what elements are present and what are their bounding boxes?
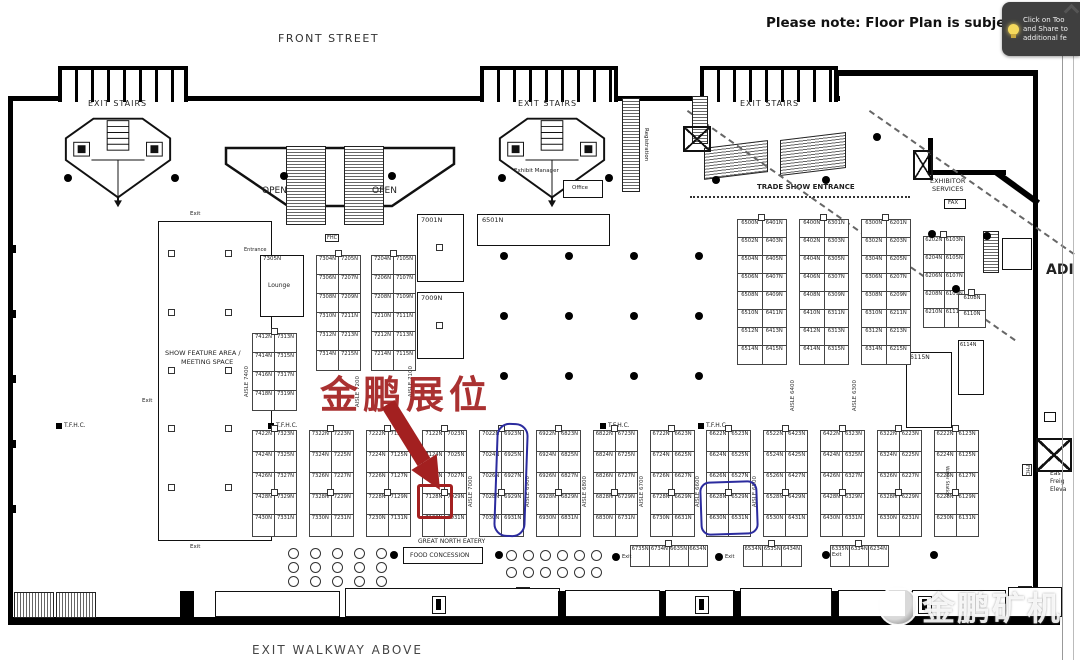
- entrance-label: Entrance: [244, 247, 266, 253]
- booth-row: 6828N6729N: [594, 494, 637, 515]
- booth-cell: 6406N: [800, 274, 825, 291]
- booth-cell: 6504N: [738, 256, 763, 273]
- booth-column-lower: 6822N6723N6824N6725N6826N6727N6828N6729N…: [593, 430, 638, 537]
- booth-cell: 6506N: [738, 274, 763, 291]
- booth-cell: 6622N: [707, 431, 729, 451]
- building-column: [565, 372, 573, 380]
- booth-row: 6412N6313N: [800, 328, 848, 346]
- column-marker: [940, 231, 947, 238]
- tooltip-line: Click on Too: [1023, 16, 1068, 25]
- booth-row: 7306N7207N: [317, 275, 360, 294]
- wall-pilaster: [8, 375, 16, 383]
- booth-cell: 6434N: [782, 546, 800, 566]
- column-marker: [611, 425, 618, 432]
- wall: [660, 591, 666, 617]
- exit-stairs-label: EXIT STAIRS: [740, 99, 799, 108]
- building-column: [695, 372, 703, 380]
- booth-cell: 7125N: [389, 452, 410, 472]
- booth-cell: 6429N: [786, 494, 807, 514]
- column-marker: [820, 214, 827, 221]
- booth-cell: 7416N: [253, 372, 275, 390]
- column-marker: [327, 425, 334, 432]
- booth-cell: 7428N: [253, 494, 275, 514]
- dining-table: [288, 576, 299, 587]
- booth-cell: 6412N: [800, 328, 825, 345]
- exit-label: Exit: [190, 211, 200, 217]
- booth-row: 6930N6831N: [537, 515, 580, 536]
- booth-row: 6108N: [959, 295, 985, 311]
- booth-cell: 6323N: [843, 431, 864, 451]
- exit-stair-vestibule: [700, 66, 838, 102]
- booth-row: 6514N6415N: [738, 346, 786, 364]
- service-room: [1008, 587, 1062, 617]
- booth-cell: 6411N: [763, 310, 787, 327]
- booth-cell: 6315N: [825, 346, 849, 364]
- booth-cell: 6108N: [959, 295, 985, 310]
- booth-cell: 6627N: [673, 473, 694, 493]
- booth-row: 6300N6201N: [862, 220, 910, 238]
- booth-cell: 6304N: [862, 256, 887, 273]
- booth-row: 6830N6731N: [594, 515, 637, 536]
- open-label: OPEN: [262, 186, 287, 196]
- column-marker: [168, 484, 175, 491]
- column-marker: [839, 489, 846, 496]
- column-marker: [225, 425, 232, 432]
- booth-cell: 7127N: [389, 473, 410, 493]
- booth-cell: 6400N: [800, 220, 825, 237]
- booth-cell: 7315N: [275, 353, 296, 371]
- booth-cell: 7109N: [394, 294, 415, 312]
- booth-row: 6202N6103N: [924, 237, 964, 255]
- booth-row: 7414N7315N: [253, 353, 296, 372]
- water-station-label: Water Station: [944, 466, 949, 497]
- booth-row: 6230N6131N: [935, 515, 978, 536]
- booth-cell: 7310N: [317, 313, 339, 331]
- service-room: [740, 588, 832, 617]
- booth-row: 7308N7209N: [317, 294, 360, 313]
- column-marker: [668, 425, 675, 432]
- service-room: [838, 590, 908, 617]
- booth-row: 6500N6401N: [738, 220, 786, 238]
- building-column: [388, 172, 396, 180]
- wall: [8, 617, 1060, 625]
- dining-table: [540, 567, 551, 578]
- booth-row: 7328N7229N: [310, 494, 353, 515]
- column-marker: [168, 367, 175, 374]
- tfhc-marker: [56, 423, 62, 429]
- booth-cell: 7123N: [389, 431, 410, 451]
- fhc-box: FHC: [1022, 464, 1032, 476]
- booth-cell: 6205N: [887, 256, 911, 273]
- booth-column-upper: 7304N7205N7306N7207N7308N7209N7310N7211N…: [316, 255, 361, 371]
- exit-label: Exit: [190, 544, 200, 550]
- building-column: [495, 551, 503, 559]
- booth-cell: 7308N: [317, 294, 339, 312]
- booth-cell: 6209N: [887, 292, 911, 309]
- exit-walkway-label: EXIT WALKWAY ABOVE: [252, 643, 423, 657]
- booth-cell: 7229N: [332, 494, 353, 514]
- booth-cell: 6423N: [786, 431, 807, 451]
- booth-row: 6306N6207N: [862, 274, 910, 292]
- booth-cell: 7430N: [253, 515, 275, 536]
- booth-cell: 7325N: [275, 452, 296, 472]
- exhibit-manager-label: Exhibit Manager: [514, 168, 559, 174]
- booth-row: 6400N6301N: [800, 220, 848, 238]
- booth-row: 6822N6723N: [594, 431, 637, 452]
- building-column: [822, 176, 830, 184]
- booth-id: 6114N: [960, 342, 976, 348]
- restroom-icon: [918, 596, 932, 614]
- booth-cell: 7113N: [394, 332, 415, 350]
- wall: [905, 591, 913, 617]
- booth-cell: 6306N: [862, 274, 887, 291]
- dining-table: [376, 548, 387, 559]
- service-room: [215, 591, 340, 617]
- booth-cell: 6530N: [764, 515, 786, 536]
- booth-row: 6228N6129N: [935, 494, 978, 515]
- booth-cell: 7228N: [367, 494, 389, 514]
- page-edge-line-2: [1073, 14, 1074, 660]
- booth-row: 6528N6429N: [764, 494, 807, 515]
- tooltip-line: additional fe: [1023, 34, 1068, 43]
- show-feature-label: SHOW FEATURE AREA /: [165, 349, 241, 357]
- booth-cell: 6828N: [594, 494, 616, 514]
- booth-row: 7418N7319N: [253, 391, 296, 410]
- booth-cell: 6523N: [729, 431, 750, 451]
- building-column: [695, 312, 703, 320]
- stair-core: [58, 112, 180, 208]
- booth-cell: 6103N: [945, 237, 965, 254]
- booth-cell: 7324N: [310, 452, 332, 472]
- wall: [830, 70, 1038, 76]
- booth-cell: 6631N: [673, 515, 694, 536]
- booth-cell: 7122N: [423, 431, 445, 451]
- booth-cell: 6203N: [887, 238, 911, 255]
- service-room: [1002, 238, 1032, 270]
- exit-stair-vestibule: [58, 66, 188, 102]
- booth-cell: 6405N: [763, 256, 787, 273]
- dining-table: [288, 562, 299, 573]
- booth-row: 6524N6425N: [764, 452, 807, 473]
- elevator: [913, 150, 933, 180]
- booth-cell: 6231N: [900, 515, 921, 536]
- building-column: [565, 252, 573, 260]
- exhibitor-services-label: EXHIBITOR: [930, 177, 965, 185]
- booth-row: 6522N6423N: [764, 431, 807, 452]
- booth-row: 6304N6205N: [862, 256, 910, 274]
- booth-row: 7206N7107N: [372, 275, 415, 294]
- booth-cell: 6208N: [924, 291, 945, 308]
- booth-cell: 6831N: [559, 515, 580, 536]
- column-marker: [335, 250, 342, 257]
- booth-cell: 6522N: [764, 431, 786, 451]
- booth-cell: 7124N: [423, 452, 445, 472]
- booth-cell: 6110N: [959, 311, 985, 327]
- open-label: OPEN: [372, 186, 397, 196]
- booth-row: 7222N7123N: [367, 431, 410, 452]
- elevator-callbox: [1044, 412, 1056, 422]
- booth-column-upper-right: 6300N6201N6302N6203N6304N6205N6306N6207N…: [861, 219, 911, 365]
- booth-cell: 6824N: [594, 452, 616, 472]
- booth-cell: 6334N: [850, 546, 869, 566]
- column-marker: [271, 425, 278, 432]
- booth-row: 6406N6307N: [800, 274, 848, 292]
- dining-table: [574, 550, 585, 561]
- column-marker: [895, 425, 902, 432]
- booth-cell: 6303N: [825, 238, 849, 255]
- booth-cell: 6227N: [900, 473, 921, 493]
- building-column: [605, 174, 613, 182]
- booth-row: 7208N7109N: [372, 294, 415, 313]
- column-marker: [855, 540, 862, 547]
- booth-cell: 6722N: [651, 431, 673, 451]
- booth-cell: 6331N: [843, 515, 864, 536]
- booth-cell: 6514N: [738, 346, 763, 364]
- booth-cell: 6322N: [878, 431, 900, 451]
- freight-elevator: [1036, 438, 1072, 472]
- building-column: [171, 174, 179, 182]
- lightbulb-icon: [1008, 24, 1019, 35]
- booth-row: 6322N6223N: [878, 431, 921, 452]
- blue-highlight-column: [493, 422, 529, 537]
- booth-cell: 7225N: [332, 452, 353, 472]
- booth-cell: 6313N: [825, 328, 849, 345]
- booth-cell: 6414N: [800, 346, 825, 364]
- booth-row: 6504N6405N: [738, 256, 786, 274]
- building-column: [500, 312, 508, 320]
- booth-cell: 6424N: [821, 452, 843, 472]
- column-marker: [271, 328, 278, 335]
- booth-row: 6728N6629N: [651, 494, 694, 515]
- booth-row: 7422N7323N: [253, 431, 296, 452]
- booth-cell: 6728N: [651, 494, 673, 514]
- booth-cell: 7213N: [339, 332, 360, 350]
- dining-table: [591, 550, 602, 561]
- booth-cell: 7322N: [310, 431, 332, 451]
- building-column: [695, 252, 703, 260]
- dining-table: [310, 562, 321, 573]
- booth-cell: 6211N: [887, 310, 911, 327]
- freight-elevator-label: Eas: [1050, 470, 1061, 477]
- booth-cell: 6625N: [673, 452, 694, 472]
- column-marker: [168, 309, 175, 316]
- booth-cell: 7230N: [367, 515, 389, 536]
- booth-row: 7210N7111N: [372, 313, 415, 332]
- booth-cell: 7304N: [317, 256, 339, 274]
- booth-cell: 7231N: [332, 515, 353, 536]
- booth-cell: 6125N: [957, 452, 978, 472]
- building-column: [498, 174, 506, 182]
- booth-cell: 6329N: [843, 494, 864, 514]
- stair-hatch: [14, 592, 54, 618]
- booth-cell: 6525N: [729, 452, 750, 472]
- aisle-label: AISLE 6300: [852, 380, 858, 411]
- booth-id: 6115N: [910, 354, 930, 361]
- stair-hatch: [56, 592, 96, 618]
- booth-row: 6224N6125N: [935, 452, 978, 473]
- booth-cell: 7323N: [275, 431, 296, 451]
- dining-table: [376, 576, 387, 587]
- booth-row: 6510N6411N: [738, 310, 786, 328]
- booth-id: 7305N: [263, 256, 281, 262]
- building-column: [630, 252, 638, 260]
- booth-cell: 7129N: [389, 494, 410, 514]
- booth-cell: 6512N: [738, 328, 763, 345]
- screenshot-stage: EXIT STAIRSEXIT STAIRSEXIT STAIRSOPENOPE…: [0, 0, 1080, 660]
- booth-cell: 6223N: [900, 431, 921, 451]
- booth-cell: 6201N: [887, 220, 911, 237]
- food-concession-label: FOOD CONCESSION: [410, 552, 469, 559]
- booth-cell: 7209N: [339, 294, 360, 312]
- booth-cell: 6830N: [594, 515, 616, 536]
- booth-row: 6924N6825N: [537, 452, 580, 473]
- show-feature-label: MEETING SPACE: [181, 358, 233, 366]
- wall-pilaster: [8, 440, 16, 448]
- booth-cell: 6500N: [738, 220, 763, 237]
- booth-cell: 6431N: [786, 515, 807, 536]
- freight-elevator-label: Eleva: [1050, 486, 1066, 493]
- booth-cell: 6730N: [651, 515, 673, 536]
- booth-cell: 7328N: [310, 494, 332, 514]
- dining-table: [574, 567, 585, 578]
- building-column: [280, 172, 288, 180]
- column-marker: [882, 214, 889, 221]
- dining-table: [354, 548, 365, 559]
- booth-cell: 6314N: [862, 346, 887, 364]
- booth-cell: 7224N: [367, 452, 389, 472]
- service-room: [345, 588, 560, 617]
- dining-table: [332, 562, 343, 573]
- booth-row: 7204N7105N: [372, 256, 415, 275]
- column-marker: [611, 489, 618, 496]
- booth-cell: 6207N: [887, 274, 911, 291]
- booth-row: 6622N6523N: [707, 431, 750, 452]
- booth-cell: 6825N: [559, 452, 580, 472]
- exit-stairs-label: EXIT STAIRS: [518, 99, 577, 108]
- booth-row: 6422N6323N: [821, 431, 864, 452]
- booth-cell: 7319N: [275, 391, 296, 410]
- booth-cell: 6735N: [631, 546, 650, 566]
- booth-row: 7124N7025N: [423, 452, 466, 473]
- dining-table: [506, 567, 517, 578]
- booth-cell: 6822N: [594, 431, 616, 451]
- booth-row: 6204N6105N: [924, 255, 964, 273]
- wall-pilaster: [8, 245, 16, 253]
- booth-cell: 6510N: [738, 310, 763, 327]
- booth-cell: 7412N: [253, 334, 275, 352]
- booth-cell: 6502N: [738, 238, 763, 255]
- booth-cell: 6302N: [862, 238, 887, 255]
- column-marker: [441, 425, 448, 432]
- wall-pilaster: [8, 310, 16, 318]
- exhibitor-services-label: SERVICES: [932, 185, 964, 193]
- exit-label: Exit: [622, 554, 631, 560]
- booth-row: 7310N7211N: [317, 313, 360, 332]
- booth-row: 7430N7331N: [253, 515, 296, 536]
- column-marker: [436, 244, 443, 251]
- booth-cell: 6123N: [957, 431, 978, 451]
- wall-pilaster: [8, 505, 16, 513]
- booth-id: 6501N: [482, 216, 503, 224]
- booth-cell: 6623N: [673, 431, 694, 451]
- column-marker: [952, 425, 959, 432]
- booth-row: 6302N6203N: [862, 238, 910, 256]
- booth-row: 6312N6213N: [862, 328, 910, 346]
- booth-cell: 7227N: [332, 473, 353, 493]
- booth-row: 6506N6407N: [738, 274, 786, 292]
- booth-cell: 6924N: [537, 452, 559, 472]
- booth-row: 6428N6329N: [821, 494, 864, 515]
- booth-id: 7001N: [421, 216, 442, 224]
- booth-cell: 6430N: [821, 515, 843, 536]
- wall: [558, 591, 566, 617]
- booth-cell: 6309N: [825, 292, 849, 309]
- booth-column-upper-side: 7412N7313N7414N7315N7416N7317N7418N7319N: [252, 333, 297, 411]
- booth-row: 7428N7329N: [253, 494, 296, 515]
- booth-row: 6508N6409N: [738, 292, 786, 310]
- building-column: [712, 176, 720, 184]
- booth-cell: 6731N: [616, 515, 637, 536]
- exit-label: Exit: [725, 554, 734, 560]
- booth-row: 7312N7213N: [317, 332, 360, 351]
- booth-row: 7228N7129N: [367, 494, 410, 515]
- booth-column-lower: 6722N6623N6724N6625N6726N6627N6728N6629N…: [650, 430, 695, 537]
- exit-label: Exit: [142, 398, 152, 404]
- booth-cell: 7306N: [317, 275, 339, 293]
- booth-row: 7416N7317N: [253, 372, 296, 391]
- wall: [8, 96, 13, 622]
- aisle-label: AISLE 7400: [244, 366, 250, 397]
- booth-row: 6928N6829N: [537, 494, 580, 515]
- booth-cell: 6724N: [651, 452, 673, 472]
- column-marker: [225, 484, 232, 491]
- dining-table: [591, 567, 602, 578]
- restroom-icon: [432, 596, 446, 614]
- booth-row: 7424N7325N: [253, 452, 296, 473]
- booth-6115: [906, 352, 952, 428]
- column-marker: [895, 489, 902, 496]
- booth-column-upper: 7204N7105N7206N7107N7208N7109N7210N7111N…: [371, 255, 416, 371]
- booth-cell: 6310N: [862, 310, 887, 327]
- booth-row: 6110N: [959, 311, 985, 327]
- booth-cell: 6624N: [707, 452, 729, 472]
- booth-cell: 6105N: [945, 255, 965, 272]
- aisle-label: AISLE 7000: [468, 476, 474, 507]
- column-marker: [168, 250, 175, 257]
- booth-cell: 6308N: [862, 292, 887, 309]
- booth-cell: 7131N: [389, 515, 410, 536]
- booth-cell: 6415N: [763, 346, 787, 364]
- booth-row: 6922N6823N: [537, 431, 580, 452]
- booth-cell: 7317N: [275, 372, 296, 390]
- booth-row: 6310N6211N: [862, 310, 910, 328]
- building-column: [873, 133, 881, 141]
- booth-cell: 7204N: [372, 256, 394, 274]
- booth-cell: 6427N: [786, 473, 807, 493]
- booth-row: 6502N6403N: [738, 238, 786, 256]
- exit-stairs-label: EXIT STAIRS: [88, 99, 147, 108]
- booth-cell: 6404N: [800, 256, 825, 273]
- floorplan-notice: Please note: Floor Plan is subject to: [766, 15, 1040, 31]
- booth-cell: 6922N: [537, 431, 559, 451]
- booth-cell: 6634N: [689, 546, 707, 566]
- booth-row: 6330N6231N: [878, 515, 921, 536]
- booth-cell: 7023N: [445, 431, 466, 451]
- booth-cell: 6508N: [738, 292, 763, 309]
- wall: [1033, 76, 1038, 592]
- booth-cell: 7223N: [332, 431, 353, 451]
- booth-cell: 7312N: [317, 332, 339, 350]
